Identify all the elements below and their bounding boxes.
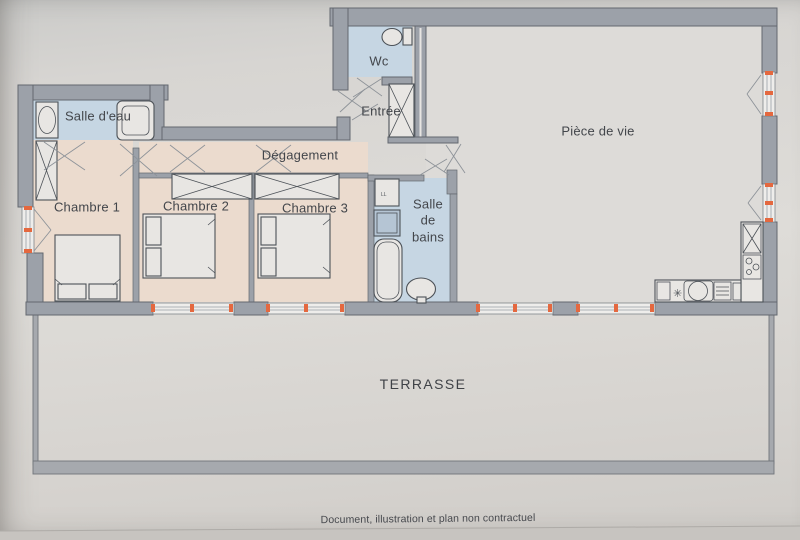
wardrobe-icon xyxy=(36,141,57,200)
floor-plan-drawing: LL ✳ xyxy=(0,0,800,540)
room-label-wc: Wc xyxy=(369,54,388,69)
washing-machine-icon: LL xyxy=(375,179,399,206)
wall-top xyxy=(330,8,777,26)
window-living-bottom-1 xyxy=(476,303,553,314)
bed-icon xyxy=(55,235,120,301)
terrace-wall-bottom xyxy=(33,461,774,474)
room-label-terrasse: TERRASSE xyxy=(380,376,467,392)
wall-bottom-3 xyxy=(345,302,478,315)
wall-entree-step xyxy=(337,117,350,140)
room-label-chambre-2: Chambre 2 xyxy=(163,199,229,214)
room-label-salle-deau: Salle d'eau xyxy=(65,109,131,124)
room-label-chambre-1: Chambre 1 xyxy=(54,200,120,215)
wc-door-swing xyxy=(353,78,382,97)
wall-bottom-4 xyxy=(553,302,578,315)
room-label-salle-de-bains: Salle de bains xyxy=(404,197,452,246)
wall-sdb-left xyxy=(368,175,374,303)
wall-bottom-5 xyxy=(655,302,777,315)
window-living-bottom-2 xyxy=(576,303,655,314)
wall-chambre1-2 xyxy=(133,148,139,302)
window-living-right-1 xyxy=(763,71,775,116)
window-chambre2-bottom xyxy=(151,303,234,314)
room-piece-de-vie xyxy=(426,26,762,302)
wall-bottom-1 xyxy=(26,302,153,315)
wall-left-upper xyxy=(18,85,33,207)
window-chambre1-left xyxy=(22,206,34,253)
room-label-piece-de-vie: Pièce de vie xyxy=(561,124,634,139)
wardrobe-icon xyxy=(172,174,252,199)
bed-icon xyxy=(143,214,215,278)
bathtub-icon xyxy=(374,239,402,302)
wall-left-lower xyxy=(27,253,43,304)
burner-icon: ✳ xyxy=(673,288,682,300)
terrace-wall-right xyxy=(769,315,774,464)
wall-salle-deau-top xyxy=(18,85,168,100)
svg-text:LL: LL xyxy=(381,192,387,198)
room-label-chambre-3: Chambre 3 xyxy=(282,201,348,216)
wall-entree-left xyxy=(333,8,348,90)
terrace-wall-left xyxy=(33,315,38,465)
disclaimer-note: Document, illustration et plan non contr… xyxy=(321,512,536,526)
floor-plan-photo: LL ✳ xyxy=(0,0,800,540)
wall-right-upper xyxy=(762,26,777,73)
toilet-icon xyxy=(382,28,412,46)
bathroom-sink-icon xyxy=(374,210,400,236)
wall-degagement xyxy=(162,127,350,140)
room-wc xyxy=(348,26,412,77)
wall-entree-bottom xyxy=(388,137,458,143)
wall-right-middle xyxy=(762,116,777,184)
window-chambre3-bottom xyxy=(266,303,345,314)
bed-icon xyxy=(258,214,330,278)
wall-right-lower xyxy=(762,222,777,315)
wall-bottom-2 xyxy=(234,302,268,315)
room-label-entree: Entrée xyxy=(361,104,401,119)
wall-sdb-right-top xyxy=(447,170,457,194)
terrace-outline xyxy=(33,315,774,474)
washbasin-icon xyxy=(36,102,58,138)
room-label-degagement: Dégagement xyxy=(262,148,338,163)
wardrobe-icon xyxy=(255,174,339,199)
window-living-right-2 xyxy=(763,183,775,222)
